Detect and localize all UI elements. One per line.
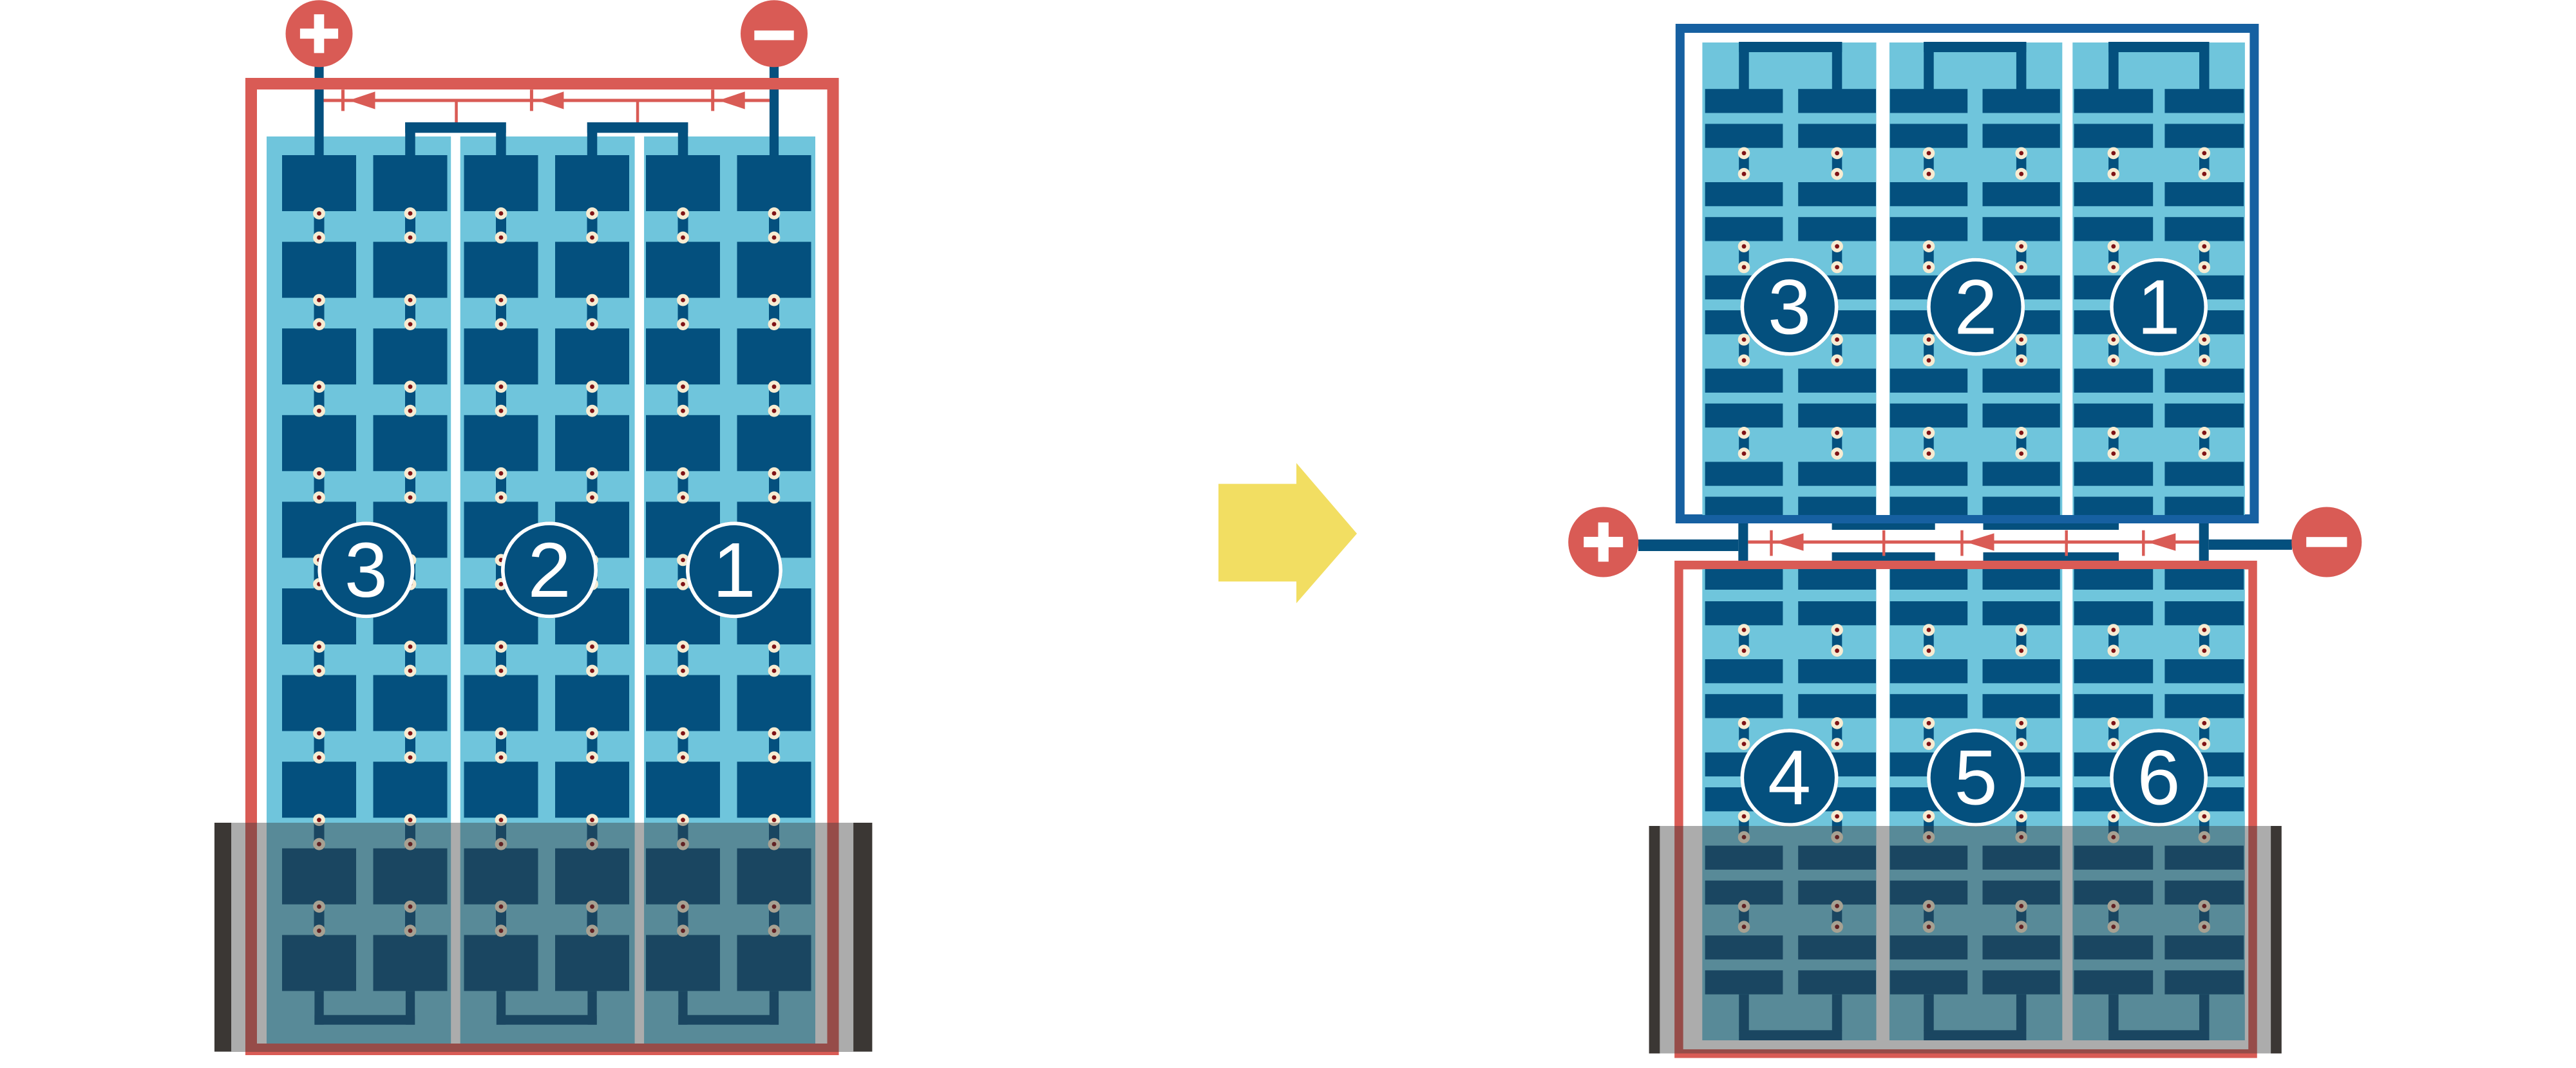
svg-text:3: 3 xyxy=(1768,263,1811,350)
svg-text:4: 4 xyxy=(1768,735,1811,821)
svg-text:2: 2 xyxy=(527,527,571,614)
svg-text:1: 1 xyxy=(2137,263,2181,350)
svg-text:3: 3 xyxy=(345,527,388,614)
svg-text:5: 5 xyxy=(1955,735,1998,821)
svg-text:6: 6 xyxy=(2137,735,2181,821)
svg-text:2: 2 xyxy=(1955,263,1998,350)
svg-text:1: 1 xyxy=(712,527,755,614)
